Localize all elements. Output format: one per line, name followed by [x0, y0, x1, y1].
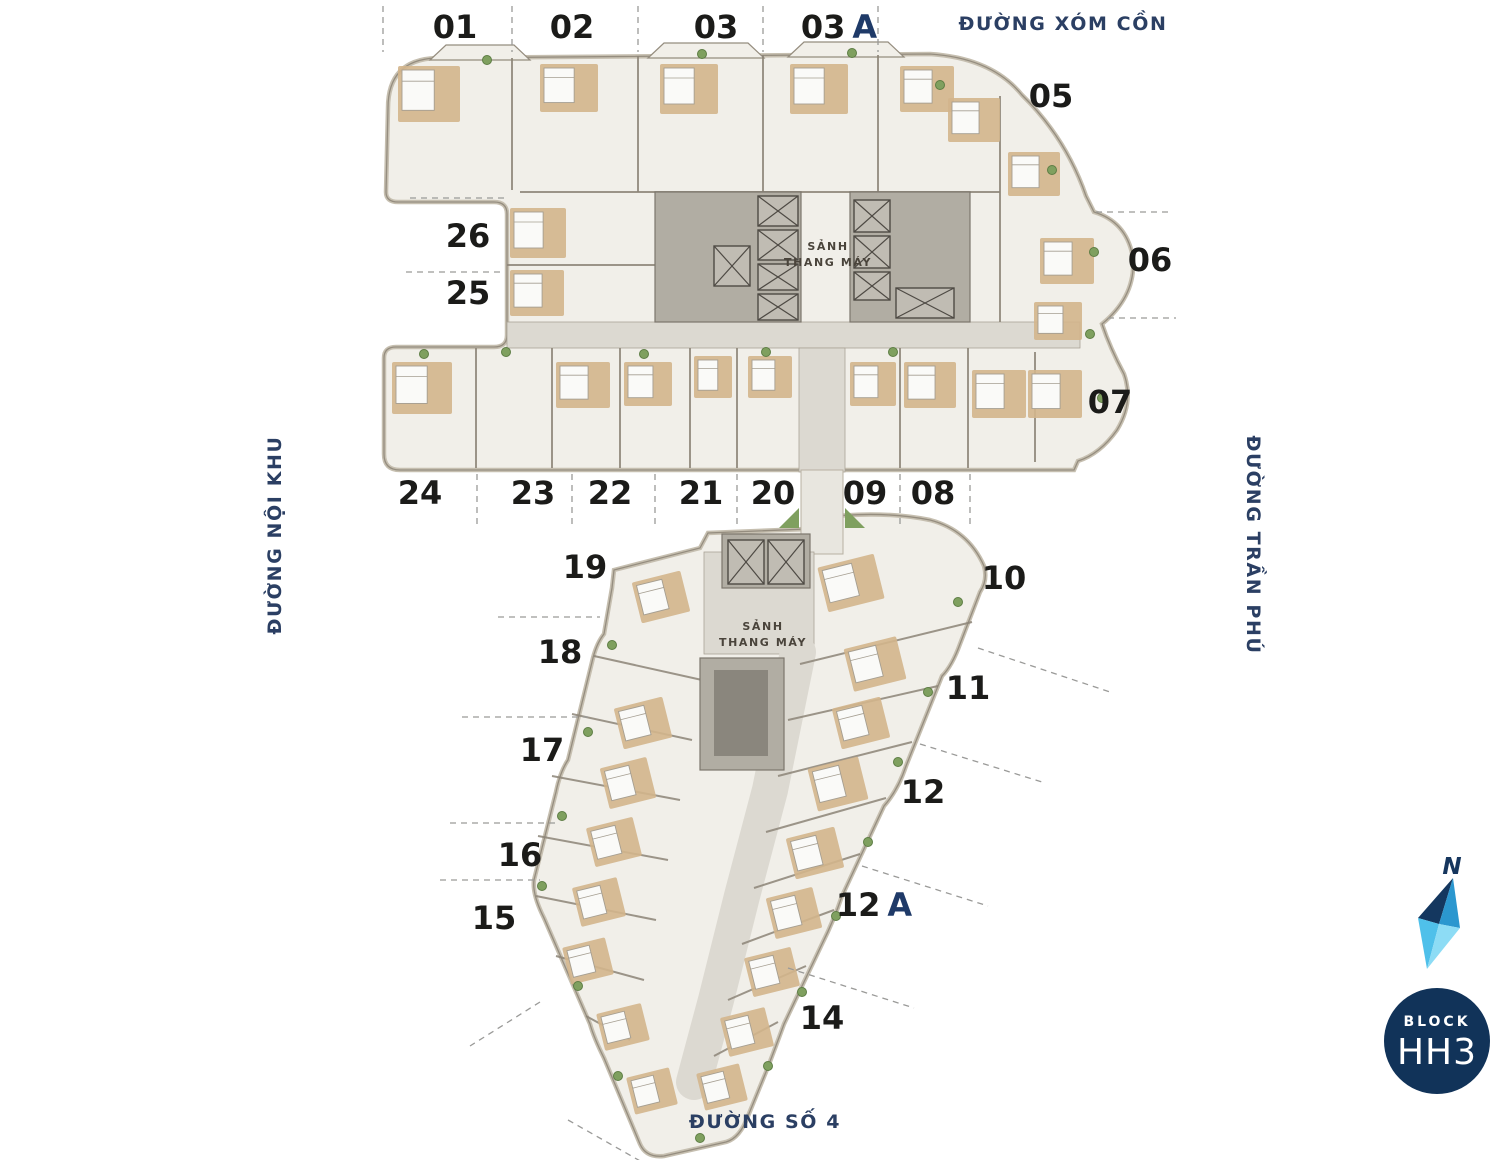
plant-icon — [1086, 330, 1095, 339]
plant-icon — [1048, 166, 1057, 175]
unit-label-21[interactable]: 21 — [679, 474, 724, 512]
plant-icon — [889, 348, 898, 357]
unit-label-23[interactable]: 23 — [511, 474, 556, 512]
bed-icon — [1044, 242, 1072, 275]
plant-icon — [558, 812, 567, 821]
plant-icon — [936, 81, 945, 90]
bed-icon — [1012, 156, 1039, 188]
unit-label-11[interactable]: 11 — [946, 669, 991, 707]
plant-icon — [848, 49, 857, 58]
bed-icon — [560, 366, 588, 399]
bedroom-area — [900, 66, 954, 112]
lobby-bottom-line2: THANG MÁY — [719, 636, 807, 649]
bed-icon — [402, 70, 434, 110]
unit-label-18[interactable]: 18 — [538, 633, 583, 671]
bed-icon — [794, 68, 824, 104]
unit-label-03[interactable]: 03 — [694, 8, 739, 46]
bedroom-area — [510, 270, 564, 316]
lobby-bottom-line1: SẢNH — [742, 619, 783, 633]
street-label-3: ĐƯỜNG SỐ 4 — [689, 1107, 841, 1133]
bedroom-area — [540, 64, 598, 112]
bed-icon — [976, 374, 1004, 409]
bed-icon — [952, 102, 979, 134]
unit-label-16[interactable]: 16 — [498, 836, 543, 874]
plant-icon — [640, 350, 649, 359]
unit-label-10[interactable]: 10 — [982, 559, 1027, 597]
bedroom-area — [748, 356, 792, 398]
unit-label-12A[interactable]: 12A — [836, 886, 913, 924]
plant-icon — [864, 838, 873, 847]
bed-icon — [908, 366, 935, 399]
bedroom-area — [660, 64, 718, 114]
plant-icon — [483, 56, 492, 65]
street-label-0: ĐƯỜNG XÓM CỒN — [959, 9, 1168, 35]
bed-icon — [544, 68, 574, 103]
bedroom-area — [510, 208, 566, 258]
unit-label-01[interactable]: 01 — [433, 8, 478, 46]
corridor-connector — [799, 348, 845, 472]
north-letter: N — [1442, 854, 1461, 880]
bed-icon — [698, 360, 718, 390]
unit-label-05[interactable]: 05 — [1029, 77, 1074, 115]
plant-icon — [420, 350, 429, 359]
plant-icon — [538, 882, 547, 891]
bedroom-area — [790, 64, 848, 114]
unit-label-19[interactable]: 19 — [563, 548, 608, 586]
bedroom-area — [624, 362, 672, 406]
bedroom-area — [972, 370, 1026, 418]
bedroom-area — [850, 362, 896, 406]
bed-icon — [1038, 306, 1063, 333]
plant-icon — [924, 688, 933, 697]
unit-label-09[interactable]: 09 — [843, 474, 888, 512]
balcony-bump — [430, 45, 530, 60]
unit-label-17[interactable]: 17 — [520, 731, 565, 769]
plant-icon — [698, 50, 707, 59]
block-badge: BLOCK HH3 — [1384, 988, 1490, 1094]
unit-label-25[interactable]: 25 — [446, 274, 491, 312]
bedroom-area — [556, 362, 610, 408]
unit-label-26[interactable]: 26 — [446, 217, 491, 255]
plant-icon — [584, 728, 593, 737]
bed-icon — [1032, 374, 1060, 409]
street-label-2: ĐƯỜNG NỘI KHU — [262, 435, 286, 634]
unit-label-07[interactable]: 07 — [1088, 383, 1133, 421]
unit-label-22[interactable]: 22 — [588, 474, 633, 512]
plant-icon — [894, 758, 903, 767]
lobby-top-line2: THANG MÁY — [784, 256, 872, 269]
bed-icon — [752, 360, 775, 390]
bed-icon — [904, 70, 932, 103]
plant-icon — [696, 1134, 705, 1143]
bedroom-area — [1028, 370, 1082, 418]
plant-icon — [502, 348, 511, 357]
lobby-top-line1: SẢNH — [807, 239, 848, 253]
bed-icon — [396, 366, 427, 403]
bed-icon — [628, 366, 653, 398]
bed-icon — [514, 274, 542, 307]
unit-label-08[interactable]: 08 — [911, 474, 956, 512]
bed-icon — [664, 68, 694, 104]
plant-icon — [1090, 248, 1099, 257]
plant-icon — [608, 641, 617, 650]
bed-icon — [854, 366, 878, 398]
bed-icon — [514, 212, 543, 248]
street-label-1: ĐƯỜNG TRẦN PHÚ — [1242, 436, 1268, 655]
badge-block-text: BLOCK — [1403, 1014, 1470, 1030]
bedroom-area — [1034, 302, 1082, 340]
plant-icon — [764, 1062, 773, 1071]
bedroom-area — [1040, 238, 1094, 284]
stair-core — [714, 670, 768, 756]
plant-icon — [762, 348, 771, 357]
unit-label-15[interactable]: 15 — [472, 899, 517, 937]
unit-label-03A[interactable]: 03A — [801, 8, 878, 46]
floor-plan-canvas: SẢNH THANG MÁY SẢNH THANG MÁY ĐƯỜNG XÓM … — [0, 0, 1500, 1160]
bedroom-area — [948, 98, 1000, 142]
floor-plan-page: SẢNH THANG MÁY SẢNH THANG MÁY ĐƯỜNG XÓM … — [0, 0, 1500, 1160]
unit-label-14[interactable]: 14 — [800, 999, 845, 1037]
bedroom-area — [398, 66, 460, 122]
bedroom-area — [904, 362, 956, 408]
badge-hh3-text: HH3 — [1397, 1032, 1477, 1073]
unit-label-20[interactable]: 20 — [751, 474, 796, 512]
plant-icon — [798, 988, 807, 997]
plant-icon — [614, 1072, 623, 1081]
corridor-horizontal — [507, 322, 1080, 348]
bedroom-area — [392, 362, 452, 414]
unit-label-02[interactable]: 02 — [550, 8, 595, 46]
unit-label-12[interactable]: 12 — [901, 773, 946, 811]
unit-label-06[interactable]: 06 — [1128, 241, 1173, 279]
plant-icon — [574, 982, 583, 991]
unit-label-24[interactable]: 24 — [398, 474, 443, 512]
bedroom-area — [694, 356, 732, 398]
plant-icon — [954, 598, 963, 607]
